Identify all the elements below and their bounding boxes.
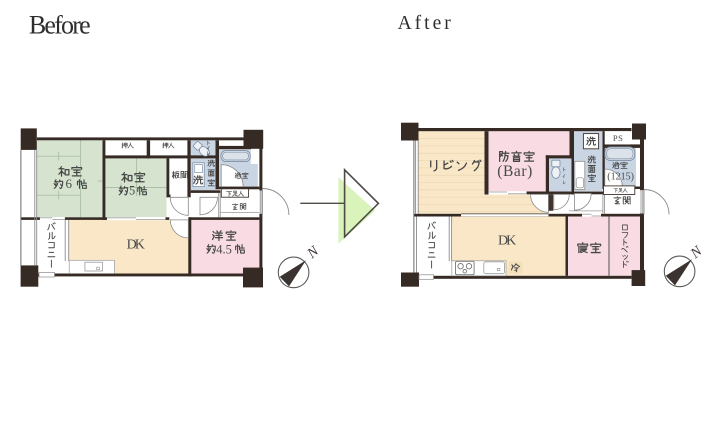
svg-text:5: 5 <box>129 184 135 198</box>
svg-text:4.5: 4.5 <box>216 242 232 256</box>
svg-text:DK: DK <box>127 238 145 253</box>
svg-text:(1215): (1215) <box>607 171 634 182</box>
svg-text:PS: PS <box>613 133 623 143</box>
svg-text:DK: DK <box>498 234 516 249</box>
svg-text:6: 6 <box>66 176 73 191</box>
svg-text:After: After <box>398 13 454 34</box>
svg-text:(Bar): (Bar) <box>497 163 533 180</box>
svg-text:Before: Before <box>29 11 90 40</box>
